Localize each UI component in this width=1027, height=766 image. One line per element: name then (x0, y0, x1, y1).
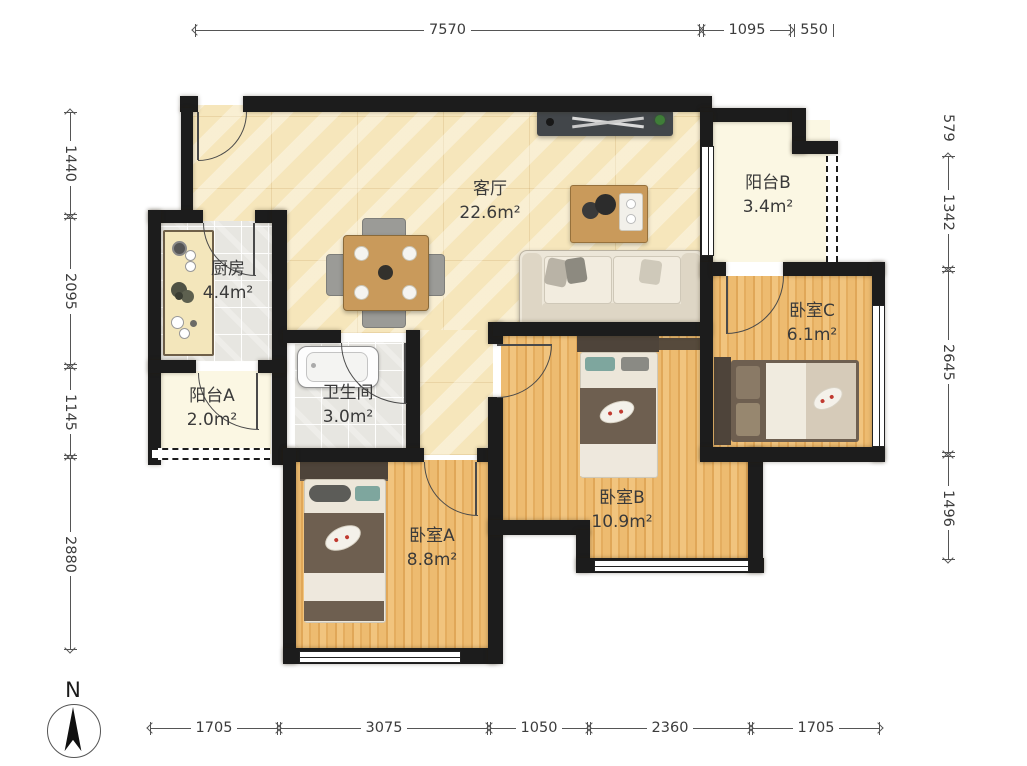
arrow-left-icon (277, 722, 288, 733)
room-label-kitchen: 厨房 4.4m² (168, 258, 288, 306)
dim-top-550: 550 (794, 22, 844, 38)
dim-label: 579 (940, 110, 956, 146)
arrow-up-icon (942, 268, 953, 279)
room-name: 卧室C (789, 301, 835, 321)
room-label-bedroom-c: 卧室C 6.1m² (752, 300, 872, 348)
sofa-armrest (522, 253, 542, 327)
window (872, 305, 885, 447)
dim-left-2095: 2095 (62, 218, 78, 365)
pillow (585, 357, 615, 371)
dim-label: 1145 (62, 390, 78, 435)
dim-label: 1496 (940, 486, 956, 531)
room-area: 2.0m² (187, 410, 237, 430)
sofa (519, 250, 705, 332)
wall (243, 96, 712, 112)
dim-left-1145: 1145 (62, 368, 78, 456)
pillow (736, 403, 760, 436)
dim-right-1342: 1342 (940, 156, 956, 268)
bed-b (577, 336, 659, 478)
prep-sink-icon (179, 328, 190, 339)
room-name: 卧室A (409, 526, 455, 546)
dim-line (471, 30, 699, 31)
arrow-up-icon (942, 453, 953, 464)
arrow-down-icon (64, 642, 75, 653)
bed-c (714, 357, 864, 445)
wall (493, 322, 712, 336)
dim-label: 1705 (191, 720, 238, 736)
room-area: 10.9m² (591, 512, 652, 532)
tray (619, 193, 643, 231)
dining-table (343, 235, 429, 311)
dim-line (196, 30, 424, 31)
pillow (736, 366, 760, 399)
dim-tick (833, 24, 834, 37)
decor-dot (619, 409, 624, 414)
arrow-left-icon (749, 722, 760, 733)
room-area: 4.4m² (203, 283, 253, 303)
dim-bottom-1050: 1050 (490, 720, 588, 736)
wall (258, 360, 285, 373)
bedroom-c-door-leaf (726, 276, 728, 333)
dim-line (948, 272, 949, 339)
arrow-up-icon (942, 153, 953, 164)
dim-right-579: 579 (940, 110, 956, 152)
decor-dot (344, 535, 349, 540)
dim-label: 2360 (647, 720, 694, 736)
notch-cutout (503, 535, 576, 655)
sofa-pillow (638, 259, 662, 286)
dim-label: 2095 (62, 269, 78, 314)
wall (283, 448, 424, 462)
dim-top-1095: 1095 (703, 22, 791, 38)
arrow-right-icon (783, 24, 794, 35)
wall (148, 360, 196, 373)
dim-label: 2645 (940, 340, 956, 385)
room-label-bedroom-b: 卧室B 10.9m² (562, 487, 682, 535)
wall (283, 448, 296, 664)
room-area: 8.8m² (407, 550, 457, 570)
pillow (309, 485, 351, 502)
speaker-icon (546, 118, 554, 126)
dim-bottom-1705b: 1705 (752, 720, 880, 736)
floor-plan: 客厅 22.6m² 阳台B 3.4m² 厨房 4.4m² 阳台A 2.0m² 卫… (0, 0, 1027, 766)
dim-line (281, 728, 360, 729)
room-area: 3.4m² (743, 197, 793, 217)
decor-dot (820, 398, 825, 403)
arrow-up-icon (64, 109, 75, 120)
wall (783, 262, 885, 276)
dim-top-7570: 7570 (195, 22, 700, 38)
plant-icon (655, 115, 665, 125)
sheet-band (580, 444, 656, 476)
balcony-a-open-edge (152, 448, 270, 460)
dining-set (322, 218, 448, 328)
hallway-floor (410, 330, 493, 455)
wall (748, 447, 763, 573)
dim-label: 1050 (516, 720, 563, 736)
plate (402, 246, 417, 261)
dim-right-1496: 1496 (940, 456, 956, 560)
arrow-up-icon (64, 455, 75, 466)
entry-door-leaf (197, 112, 199, 160)
wall (283, 330, 341, 343)
dim-bottom-2360: 2360 (590, 720, 750, 736)
arrow-down-icon (942, 552, 953, 563)
plate (354, 246, 369, 261)
room-name: 卧室B (599, 488, 645, 508)
dim-label: 1342 (940, 190, 956, 235)
decor-dot (608, 411, 613, 416)
arrow-left-icon (147, 722, 158, 733)
dim-label: 550 (795, 22, 833, 38)
dim-label: 3075 (361, 720, 408, 736)
dim-left-1440: 1440 (62, 112, 78, 215)
compass-north-label: N (44, 678, 102, 702)
dim-bottom-3075: 3075 (280, 720, 488, 736)
dim-line (591, 728, 646, 729)
cup-icon (626, 199, 636, 209)
arrow-up-icon (64, 365, 75, 376)
decor-dot (334, 537, 339, 542)
room-name: 阳台B (745, 173, 791, 193)
room-label-balcony-b: 阳台B 3.4m² (708, 172, 828, 220)
dim-line (70, 576, 71, 648)
plate (354, 285, 369, 300)
drain-icon (311, 363, 316, 368)
sheet-band (304, 573, 384, 601)
sheet-band (766, 363, 806, 439)
arrow-right-icon (872, 722, 883, 733)
prep-sink-icon (190, 320, 197, 327)
bedroom-b-door-leaf (497, 344, 551, 346)
arrow-left-icon (587, 722, 598, 733)
arrow-left-icon (700, 24, 711, 35)
bedroom-a-door-leaf (475, 462, 477, 515)
dim-line (693, 728, 748, 729)
room-label-balcony-a: 阳台A 2.0m² (152, 385, 272, 433)
dim-left-2880: 2880 (62, 458, 78, 650)
room-area: 3.0m² (323, 407, 373, 427)
headboard (577, 336, 659, 352)
wall (700, 447, 885, 462)
dim-line (70, 219, 71, 269)
room-label-bedroom-a: 卧室A 8.8m² (372, 525, 492, 573)
prep-sink-icon (171, 316, 184, 329)
room-name: 客厅 (473, 179, 507, 199)
room-name: 卫生间 (323, 383, 374, 403)
headboard (714, 357, 731, 445)
arrow-left-icon (487, 722, 498, 733)
compass: N (44, 678, 102, 760)
room-area: 6.1m² (787, 325, 837, 345)
wall (700, 108, 792, 122)
dim-bottom-1705a: 1705 (150, 720, 278, 736)
dim-line (407, 728, 486, 729)
bowl-icon (378, 265, 393, 280)
wall (700, 262, 713, 461)
room-name: 阳台A (189, 386, 235, 406)
wall (406, 330, 420, 462)
dim-right-2645: 2645 (940, 271, 956, 453)
sofa-pillow (564, 257, 588, 285)
sofa-armrest (681, 253, 701, 327)
wall (792, 141, 838, 154)
room-label-bathroom: 卫生间 3.0m² (288, 382, 408, 430)
dim-label: 7570 (424, 22, 471, 38)
dim-label: 2880 (62, 532, 78, 577)
window (299, 651, 461, 663)
kettle-icon (595, 194, 616, 215)
arrow-left-icon (192, 24, 203, 35)
dim-label: 1705 (793, 720, 840, 736)
dim-label: 1095 (724, 22, 771, 38)
cup-icon (626, 214, 636, 224)
room-name: 厨房 (211, 259, 245, 279)
wall (181, 108, 193, 212)
dim-line (70, 459, 71, 531)
blanket-foot (304, 601, 384, 621)
dim-line (948, 384, 949, 451)
pillow (355, 486, 380, 501)
room-label-living: 客厅 22.6m² (430, 178, 550, 226)
decor-dot (829, 394, 834, 399)
pillow (621, 357, 649, 371)
room-area: 22.6m² (459, 203, 520, 223)
coffee-table (570, 185, 648, 243)
arrow-up-icon (64, 215, 75, 226)
dim-label: 1440 (62, 141, 78, 186)
wall (712, 262, 726, 276)
plate (402, 285, 417, 300)
window (594, 560, 749, 572)
tv-console (537, 110, 673, 136)
